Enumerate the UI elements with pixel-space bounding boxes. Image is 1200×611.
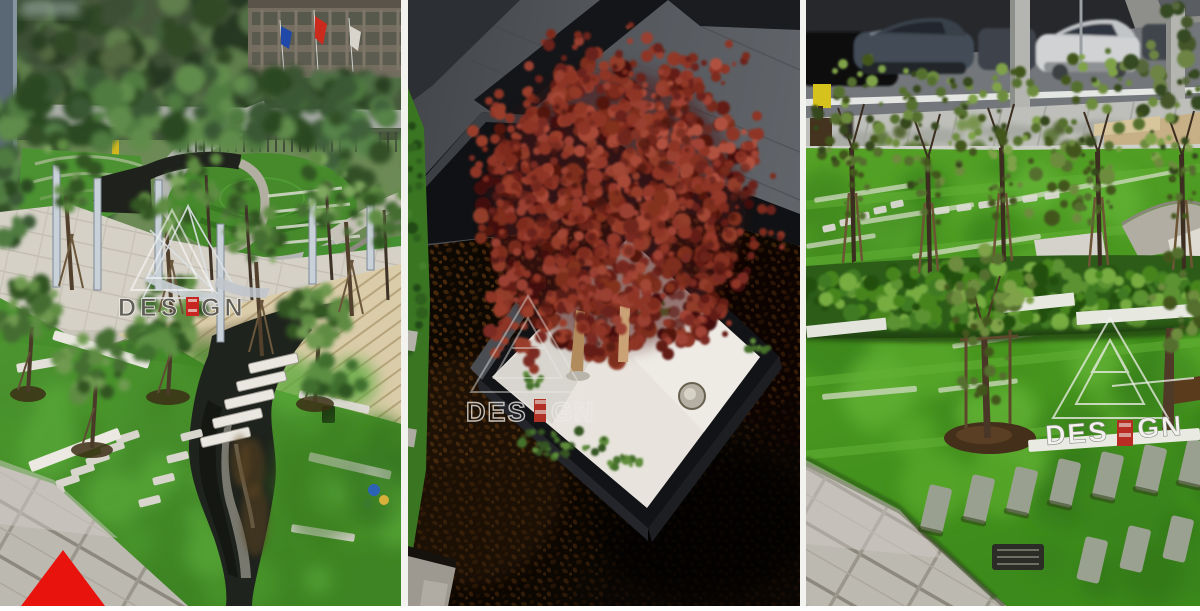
svg-text:GN: GN (1136, 410, 1184, 444)
svg-text:DES: DES (118, 294, 181, 322)
svg-text:DES: DES (1044, 416, 1110, 451)
svg-text:GN: GN (551, 397, 596, 427)
svg-text:DES: DES (466, 397, 528, 427)
svg-text:GN: GN (201, 294, 247, 322)
